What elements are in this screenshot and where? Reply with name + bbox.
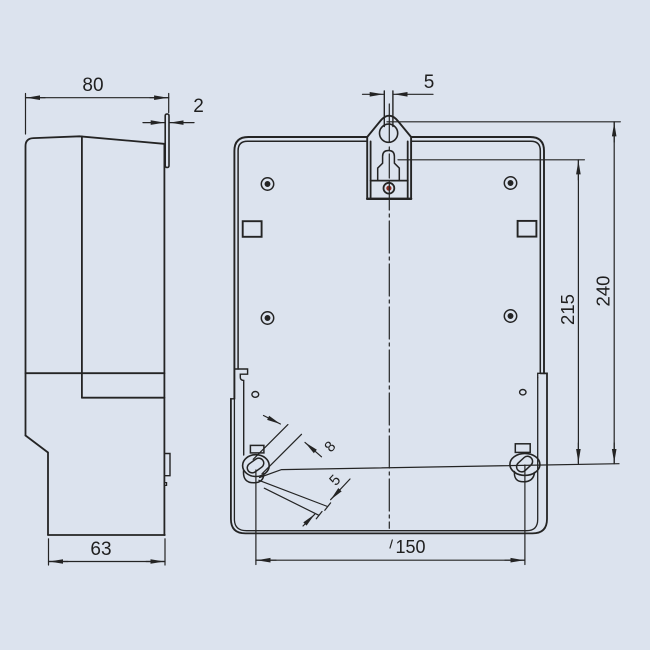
svg-text:240: 240: [593, 276, 614, 307]
svg-text:150: 150: [395, 537, 425, 557]
svg-text:2: 2: [193, 96, 204, 117]
svg-text:80: 80: [82, 75, 103, 96]
svg-text:63: 63: [90, 539, 111, 560]
svg-text:5: 5: [424, 72, 435, 93]
svg-text:215: 215: [557, 294, 578, 325]
